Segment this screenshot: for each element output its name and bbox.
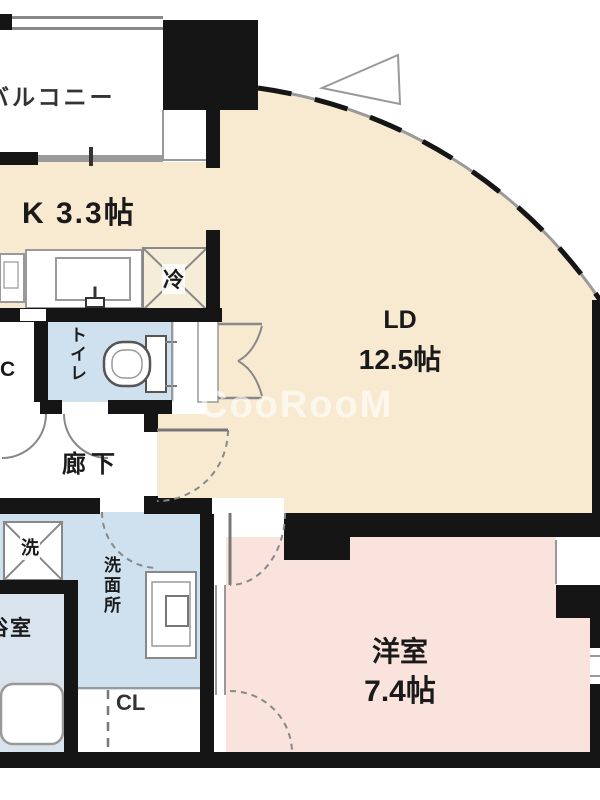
wall-toilet-left xyxy=(34,322,48,402)
wall-hall-ld-upper xyxy=(144,414,158,432)
closet-label: CL xyxy=(116,690,145,716)
wall-bathroom-right xyxy=(64,592,78,758)
washroom-label: 洗面所 xyxy=(98,556,123,616)
watermark: CooRooM xyxy=(200,384,393,427)
wall-hall-ld-lower xyxy=(144,496,158,514)
balcony-rail-inner xyxy=(0,27,163,30)
wall-toilet-bottom-2 xyxy=(108,400,172,414)
faucet-base xyxy=(86,298,104,307)
balcony-rail-outer xyxy=(0,16,163,19)
ld-name-label: LD xyxy=(330,306,470,335)
wall-toilet-bottom-1 xyxy=(40,400,62,414)
stove-detail xyxy=(4,262,18,288)
wall-hall-bottom-1 xyxy=(0,498,100,514)
wall-western-top-block xyxy=(284,513,350,560)
hallway-label: 廊下 xyxy=(62,444,120,479)
floorplan-canvas: バルコニー K 3.3帖 LD 12.5帖 トイレ C 廊下 冷 洗 洗面所 浴… xyxy=(0,0,600,800)
refrigerator-label: 冷 xyxy=(162,264,185,294)
bathroom-label: 浴室 xyxy=(0,612,33,642)
curve-vent-triangle-icon xyxy=(322,55,400,104)
window-center-tick xyxy=(89,147,93,166)
left-room-door-arc xyxy=(2,414,46,458)
western-room-size-label: 7.4帖 xyxy=(320,666,480,710)
wall-ld-right xyxy=(592,300,600,513)
wall-stub-topleft xyxy=(0,14,12,30)
wall-bottom xyxy=(0,752,600,768)
wall-western-right xyxy=(590,618,600,752)
kitchen-label: K 3.3帖 xyxy=(22,188,136,232)
wall-washroom-right xyxy=(200,514,214,758)
toilet-seat xyxy=(112,350,142,378)
balcony-label: バルコニー xyxy=(0,78,116,112)
western-top-right-window xyxy=(556,537,600,585)
washbasin-faucet xyxy=(166,596,188,626)
washing-machine-label: 洗 xyxy=(20,534,40,560)
western-room-name-label: 洋室 xyxy=(330,630,470,670)
ld-size-label: 12.5帖 xyxy=(320,338,480,378)
pillar-top xyxy=(163,20,258,110)
partial-left-label: C xyxy=(0,358,15,382)
wall-kitchen-right-upper xyxy=(206,108,220,168)
toilet-label: トイレ xyxy=(64,326,89,383)
wall-balcony-left xyxy=(0,152,38,165)
kitchen-sink xyxy=(56,258,130,300)
bathtub xyxy=(1,684,63,744)
living-dining-floor xyxy=(157,88,600,513)
pillar-right xyxy=(556,585,600,618)
wall-bathroom-top xyxy=(0,580,78,594)
gap-kitchen-bottom xyxy=(20,309,46,321)
gap-western-right-window xyxy=(590,648,600,684)
